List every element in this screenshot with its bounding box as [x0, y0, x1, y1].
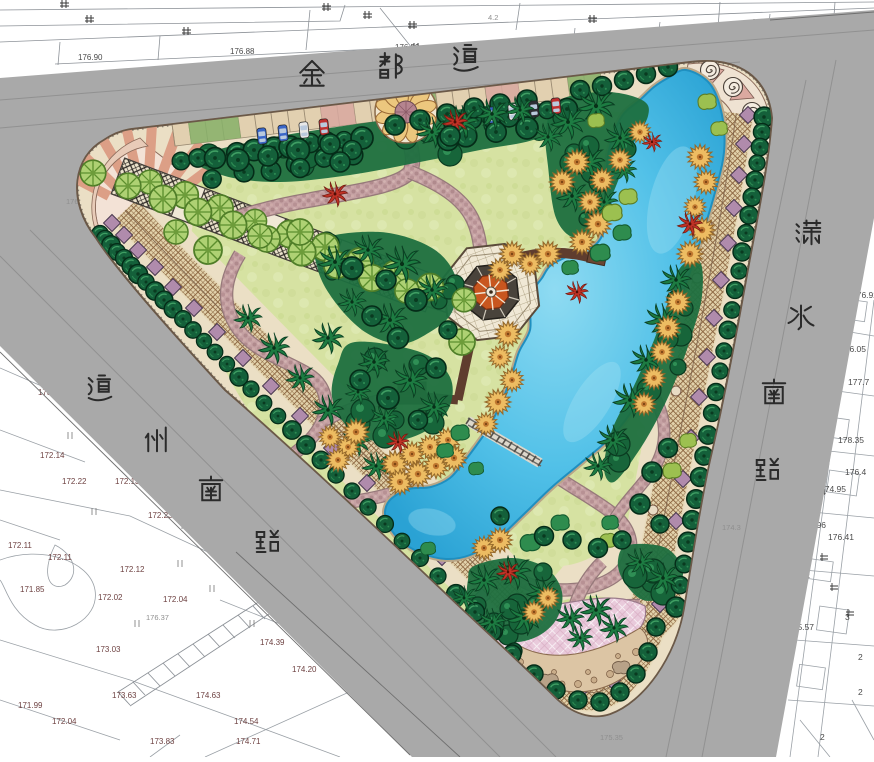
svg-text:174.3: 174.3 — [722, 523, 741, 532]
svg-text:172.04: 172.04 — [52, 717, 77, 726]
svg-text:171.85: 171.85 — [20, 585, 45, 594]
svg-text:172.04: 172.04 — [163, 595, 188, 604]
svg-text:172.11: 172.11 — [48, 553, 72, 562]
svg-text:174.54: 174.54 — [234, 717, 259, 726]
svg-text:172.12: 172.12 — [120, 565, 145, 574]
svg-text:175.35: 175.35 — [600, 733, 623, 742]
svg-text:176.37: 176.37 — [146, 613, 169, 622]
svg-text:176.41: 176.41 — [828, 532, 854, 542]
svg-text:174.20: 174.20 — [292, 665, 317, 674]
svg-text:171.99: 171.99 — [18, 701, 43, 710]
svg-text:172.22: 172.22 — [62, 477, 87, 486]
svg-text:172.11: 172.11 — [8, 541, 32, 550]
svg-text:173.63: 173.63 — [112, 691, 137, 700]
svg-text:172.02: 172.02 — [98, 593, 123, 602]
svg-text:172.14: 172.14 — [40, 451, 65, 460]
svg-text:173.83: 173.83 — [150, 737, 175, 746]
svg-text:176.4: 176.4 — [845, 467, 867, 477]
svg-text:176.88: 176.88 — [230, 47, 255, 56]
svg-text:174.63: 174.63 — [196, 691, 221, 700]
svg-text:177.7: 177.7 — [848, 377, 870, 387]
svg-text:4.2: 4.2 — [488, 13, 498, 22]
svg-text:2: 2 — [858, 652, 863, 662]
svg-text:173.03: 173.03 — [96, 645, 121, 654]
svg-text:3: 3 — [845, 612, 850, 622]
svg-text:178.35: 178.35 — [838, 435, 864, 445]
svg-text:174.71: 174.71 — [236, 737, 261, 746]
svg-text:174.39: 174.39 — [260, 638, 285, 647]
svg-text:176.90: 176.90 — [78, 53, 103, 62]
svg-text:2: 2 — [820, 732, 825, 742]
svg-text:2: 2 — [858, 687, 863, 697]
